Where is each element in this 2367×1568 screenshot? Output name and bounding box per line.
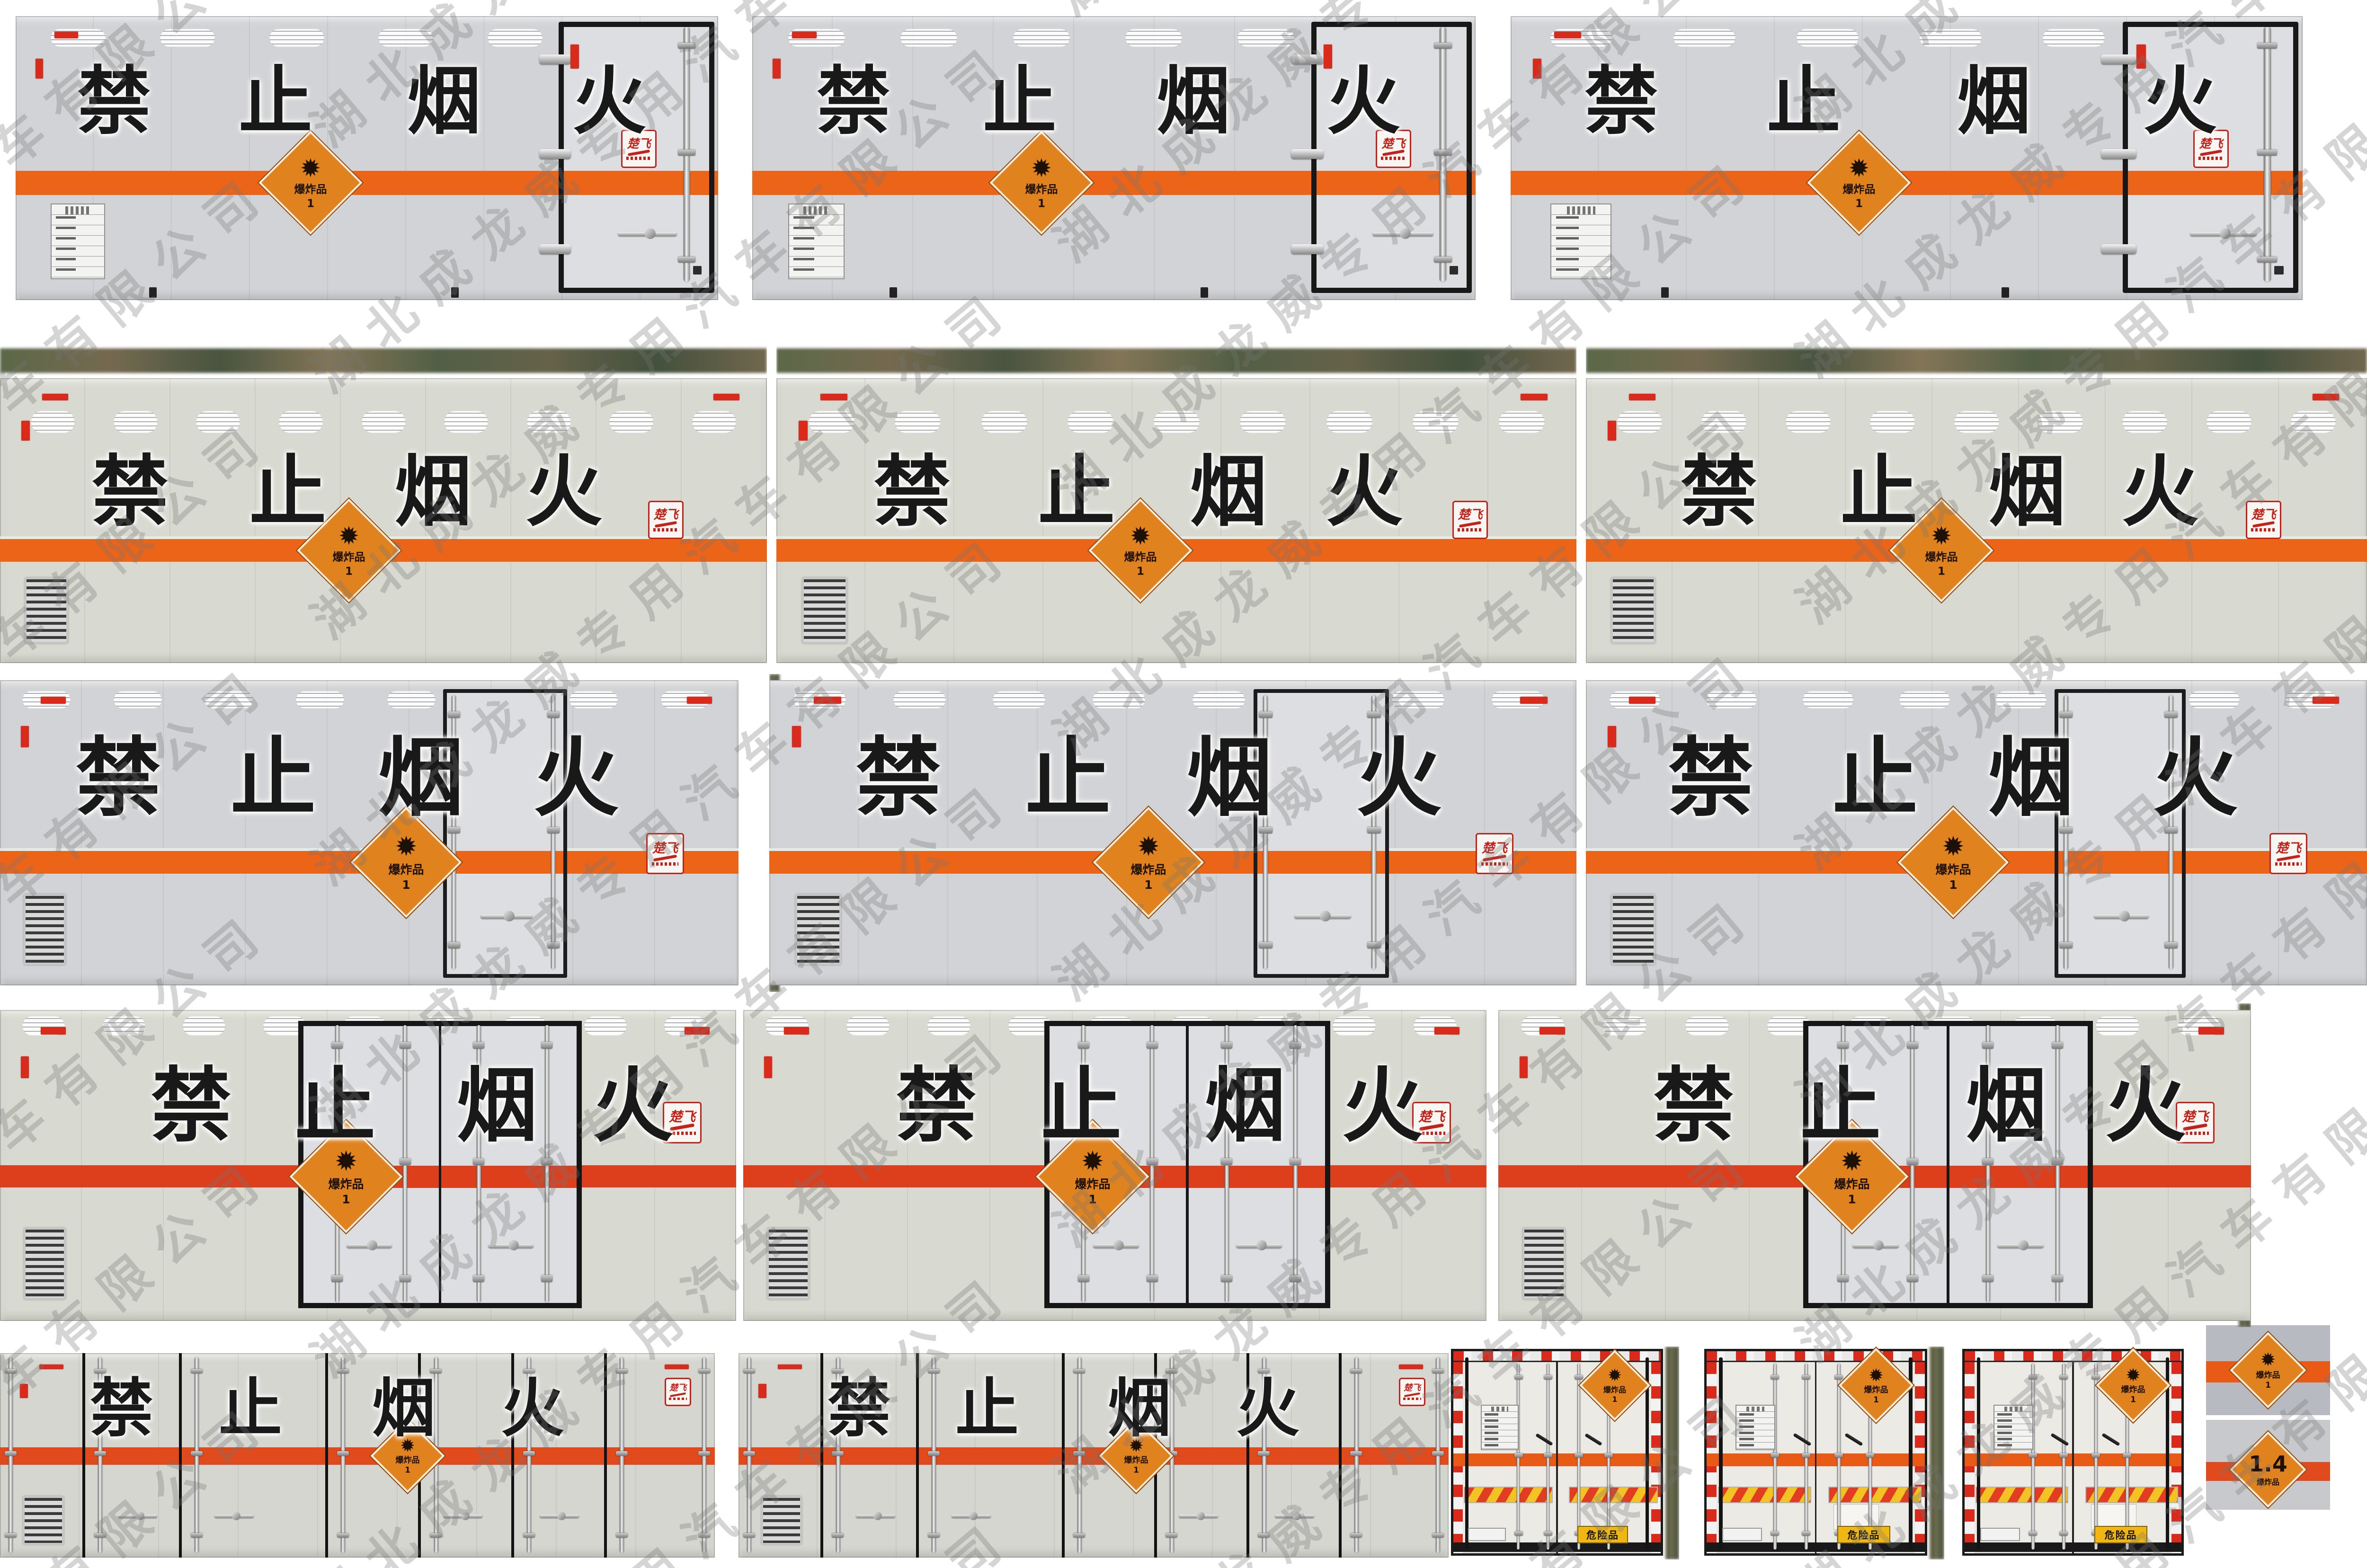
door-hinge — [1291, 244, 1324, 254]
vent-grille — [795, 894, 841, 965]
vent-slot — [1240, 411, 1286, 433]
reflector-marker — [1520, 1056, 1528, 1078]
placard-label: 爆炸品 — [1025, 184, 1058, 195]
explosion-icon: ✹ — [2126, 1366, 2141, 1384]
brand-subtext-marks — [653, 528, 678, 532]
lock-rod-bracket — [1771, 1375, 1779, 1380]
brand-swoosh-icon — [628, 150, 650, 156]
warning-char: 烟 — [407, 64, 481, 138]
placard-class-number: 1 — [405, 1467, 410, 1475]
lock-rod-bracket — [1982, 1042, 1993, 1049]
door-handle — [1793, 1433, 1811, 1446]
reflector-marker — [21, 1056, 29, 1078]
warning-char: 止 — [231, 735, 316, 821]
door-handle-hub — [1400, 228, 1411, 239]
door-handle-hub — [2220, 228, 2231, 239]
reflector-marker — [41, 697, 66, 704]
truck-box-side: ✹爆炸品1楚飞 — [0, 680, 739, 985]
placard-class-number: 1 — [1949, 879, 1957, 891]
reflector-marker — [814, 697, 841, 704]
lock-rod-bracket — [1290, 1042, 1301, 1049]
lock-rod-bracket — [1259, 711, 1272, 718]
warning-char: 止 — [239, 64, 312, 138]
hazard-placard-content: ✹爆炸品1 — [1109, 823, 1188, 902]
background-trees — [1586, 348, 2367, 373]
placard-label: 爆炸品 — [1925, 552, 1958, 563]
spec-plate-title-marks — [1491, 1407, 1508, 1411]
door-handle-hub — [136, 1512, 144, 1520]
door-lock-keeper — [2274, 266, 2284, 275]
truck-box-side: ✹爆炸品1楚飞 — [1498, 1010, 2251, 1321]
lock-rod-bracket — [1834, 1453, 1843, 1458]
vent-slot — [1603, 1016, 1646, 1036]
lock-rod-bracket — [430, 1533, 442, 1538]
warning-char: 烟 — [1108, 1377, 1171, 1440]
placard-class-number: 1 — [2130, 1396, 2136, 1405]
lock-rod-bracket — [1367, 711, 1381, 718]
placard-label: 爆炸品 — [1834, 1178, 1869, 1191]
placard-label: 爆炸品 — [1124, 552, 1157, 563]
reflective-chevron-strip — [1975, 1487, 2068, 1503]
warning-char: 火 — [1342, 1066, 1423, 1147]
lock-rod-bracket — [2091, 1375, 2100, 1380]
vent-grille — [767, 1228, 810, 1300]
vent-slot — [1996, 691, 2047, 709]
vent-slot — [114, 411, 158, 433]
license-plate — [1980, 1528, 2020, 1541]
vent-slot — [31, 411, 75, 433]
lock-rod-bracket — [1907, 1042, 1918, 1049]
brand-subtext-marks — [1403, 1398, 1421, 1400]
lock-rod-bracket — [2029, 1375, 2037, 1380]
lock-rod-bracket — [928, 1533, 940, 1538]
explosion-icon: ✹ — [1608, 1367, 1622, 1384]
reflector-marker — [54, 32, 78, 38]
vent-slot — [893, 691, 946, 709]
truck-photo-r5c3[interactable]: ✹爆炸品1危险品 — [1449, 1347, 1679, 1559]
door-handle-hub — [232, 1512, 240, 1520]
placard-label: 爆炸品 — [294, 184, 327, 195]
brand-logo-text: 楚飞 — [2276, 842, 2301, 855]
lock-rod-bracket — [94, 1533, 106, 1538]
lock-rod-bracket — [1837, 1042, 1849, 1049]
door-handle-hub — [367, 1240, 377, 1250]
lock-rod-bracket — [1802, 1531, 1810, 1536]
lock-rod-bracket — [191, 1369, 203, 1373]
truck-box-side: ✹爆炸品1楚飞 — [0, 1010, 736, 1321]
brand-sticker: 楚飞 — [1452, 501, 1488, 539]
reflector-marker — [39, 1364, 63, 1369]
vent-slot — [205, 691, 253, 709]
orange-stripe — [0, 1447, 715, 1465]
lock-rod-bracket — [1432, 1369, 1444, 1373]
explosion-icon: ✹ — [1931, 524, 1952, 549]
explosion-icon: ✹ — [2260, 1351, 2276, 1369]
truck-box-side: ✹爆炸品1楚飞 — [769, 680, 1576, 985]
spec-plate-entries — [1556, 216, 1579, 275]
vent-slot — [387, 691, 436, 709]
warning-char: 烟 — [394, 454, 472, 531]
truck-box-rear: ✹爆炸品1危险品 — [1704, 1349, 1927, 1556]
truck-photo-r3c2[interactable]: ✹爆炸品1楚飞禁止烟火 — [769, 674, 1576, 992]
lock-rod-bracket — [1350, 1369, 1362, 1373]
lock-rod-bracket — [832, 1451, 844, 1456]
door-center-seam — [1815, 1362, 1817, 1553]
reflector-marker — [685, 1027, 710, 1035]
door-handle — [2050, 1433, 2069, 1446]
background-trees — [1930, 1347, 1944, 1559]
vent-slot — [1068, 411, 1113, 433]
vent-slot — [809, 411, 854, 433]
placard-detail-photo-r5c7[interactable]: 1.4爆炸品 — [2206, 1420, 2330, 1510]
warning-char: 火 — [2105, 1066, 2186, 1147]
lock-rod-bracket — [616, 1451, 628, 1456]
reflector-marker — [1399, 1364, 1423, 1369]
lock-rod-bracket — [1544, 1453, 1552, 1458]
placard-class-number: 1 — [342, 1193, 350, 1205]
reflective-chevron-strip — [2085, 1487, 2178, 1503]
underbody-latch — [890, 287, 897, 298]
lock-rod-bracket — [698, 1451, 710, 1456]
lock-rod-bracket — [1514, 1531, 1523, 1536]
warning-char: 禁 — [896, 1066, 977, 1147]
reflector-marker — [792, 32, 817, 38]
hazard-placard-content: ✹爆炸品1 — [2107, 1359, 2160, 1412]
lock-rod-bracket — [1514, 1375, 1523, 1380]
brand-sticker: 楚飞 — [1399, 1378, 1425, 1406]
lock-rod-bracket — [473, 1158, 484, 1165]
placard-detail-photo-r5c6[interactable]: ✹爆炸品1 — [2206, 1325, 2330, 1415]
truck-photo-r4c3[interactable]: ✹爆炸品1楚飞禁止烟火 — [1498, 1003, 2251, 1327]
reflector-marker — [21, 421, 30, 441]
lock-rod-bracket — [331, 1042, 343, 1049]
door-hinge — [539, 244, 571, 254]
lock-rod-bracket — [331, 1275, 343, 1282]
placard-label: 爆炸品 — [1130, 864, 1166, 876]
hazard-placard-content: ✹爆炸品1 — [1590, 1360, 1640, 1410]
reflector-marker — [773, 59, 781, 79]
truck-photo-r5c4[interactable]: ✹爆炸品1危险品 — [1702, 1347, 1944, 1559]
lock-rod-bracket — [2059, 1453, 2068, 1458]
door-hinge — [2101, 149, 2136, 159]
vent-slots-row — [793, 691, 1544, 708]
vent-slot — [362, 411, 406, 433]
lock-rod-bracket — [2123, 1453, 2131, 1458]
explosion-icon: ✹ — [1031, 156, 1052, 181]
brand-subtext-marks — [1458, 528, 1482, 532]
vent-slot — [1673, 29, 1735, 47]
lock-rod-bracket — [1771, 1453, 1779, 1458]
brand-subtext-marks — [652, 862, 678, 866]
lock-rod-bracket — [1514, 1453, 1523, 1458]
reflector-marker — [1520, 697, 1548, 704]
vent-slots-row — [1617, 411, 2336, 432]
placard-label: 爆炸品 — [2121, 1386, 2145, 1395]
vent-slot — [1499, 411, 1545, 433]
placard-label: 爆炸品 — [396, 1457, 420, 1465]
reflector-marker — [1434, 1027, 1459, 1035]
placard-label: 爆炸品 — [388, 864, 424, 876]
warning-char: 禁 — [77, 64, 151, 138]
lock-rod-bracket — [1604, 1453, 1613, 1458]
truck-photo-r3c1[interactable]: ✹爆炸品1楚飞禁止烟火 — [0, 674, 739, 992]
lock-rod-bracket — [1544, 1375, 1552, 1380]
warning-char: 禁 — [151, 1066, 232, 1147]
vent-slot — [527, 411, 571, 433]
vent-slot — [2189, 691, 2240, 709]
door-seam — [325, 1353, 328, 1558]
warning-char: 禁 — [817, 64, 890, 138]
vent-grille — [25, 577, 68, 644]
reflector-marker — [1629, 394, 1655, 400]
lock-rod-bracket — [2257, 43, 2277, 49]
door-handle-hub — [461, 1512, 470, 1520]
lock-rod-bracket — [1907, 1158, 1918, 1165]
lock-rod-bracket — [2029, 1531, 2037, 1536]
door-handle-hub — [1873, 1240, 1884, 1250]
warning-char: 止 — [1833, 735, 1918, 821]
reflective-chevron-strip — [1718, 1487, 1811, 1503]
vent-slot — [114, 691, 162, 709]
warning-char: 禁 — [1668, 735, 1754, 821]
brand-sticker: 楚飞 — [648, 501, 684, 539]
lock-rod-bracket — [832, 1533, 844, 1538]
warning-char: 烟 — [1966, 1066, 2047, 1147]
hazard-placard-content: ✹爆炸品1 — [2241, 1343, 2295, 1397]
lock-rod-bracket — [1258, 1533, 1270, 1538]
reflector-marker — [1539, 1027, 1565, 1035]
explosion-icon: ✹ — [1869, 1366, 1884, 1384]
truck-photo-r1c1[interactable]: ✹爆炸品1楚飞禁止烟火 — [5, 4, 729, 312]
dangerous-goods-plate: 危险品 — [1577, 1526, 1628, 1543]
lock-rod-bracket — [928, 1369, 940, 1373]
lock-rod-bracket — [400, 1042, 411, 1049]
underbody-latch — [1661, 287, 1669, 298]
brand-swoosh-icon — [1404, 1392, 1420, 1397]
warning-char: 火 — [2143, 64, 2217, 138]
lock-rod-bracket — [1350, 1533, 1362, 1538]
explosion-icon: ✹ — [1942, 833, 1965, 860]
lock-rod-bracket — [616, 1369, 628, 1373]
spec-plate — [1550, 204, 1611, 279]
truck-photo-r2c3[interactable]: ✹爆炸品1楚飞禁止烟火 — [1586, 337, 2367, 666]
lock-rod-bracket — [1771, 1531, 1779, 1536]
vent-slot — [1333, 1016, 1376, 1036]
lock-rod-bracket — [1290, 1275, 1301, 1282]
warning-char: 烟 — [1988, 735, 2074, 821]
hazard-placard-content: ✹爆炸品1 — [1823, 146, 1896, 220]
placard-label: 爆炸品 — [1124, 1457, 1148, 1465]
vent-grille — [1522, 1228, 1566, 1300]
lock-rod-bracket — [1078, 1042, 1089, 1049]
placard-class-number: 1 — [1855, 198, 1863, 209]
vent-slot — [196, 411, 240, 433]
reflector-marker — [764, 1056, 772, 1078]
hazard-placard-content: ✹爆炸品1 — [1005, 146, 1078, 220]
lock-rod-bracket — [337, 1533, 349, 1538]
vent-slot — [296, 691, 344, 709]
placard-label: 爆炸品 — [1075, 1178, 1110, 1191]
door-center-seam — [1556, 1362, 1558, 1553]
truck-photo-r1c2[interactable]: ✹爆炸品1楚飞禁止烟火 — [741, 4, 1486, 312]
reflector-marker — [792, 726, 801, 747]
dangerous-goods-plate: 危险品 — [2094, 1526, 2147, 1543]
warning-char: 禁 — [76, 735, 161, 821]
edge-lock-rod — [1977, 1357, 1980, 1549]
spec-plate-title-marks — [803, 206, 829, 214]
reflector-marker — [1533, 59, 1541, 79]
spec-plate — [51, 204, 105, 279]
reflector-marker — [42, 394, 68, 400]
warning-char: 禁 — [856, 735, 942, 821]
door-stripe-segment — [447, 851, 563, 874]
lock-rod-bracket — [678, 150, 695, 156]
reflector-marker — [820, 394, 847, 400]
warning-char: 禁 — [90, 1377, 153, 1440]
explosion-icon: ✹ — [1130, 524, 1151, 549]
brand-sticker: 楚飞 — [646, 833, 684, 874]
warning-char: 禁 — [1584, 64, 1658, 138]
door-handle-hub — [1113, 1240, 1124, 1250]
lock-rod-bracket — [678, 257, 695, 263]
vent-slot — [1237, 29, 1294, 47]
brand-subtext-marks — [626, 157, 651, 160]
lock-rod-bracket — [5, 1451, 17, 1456]
lock-rod-bracket — [1147, 1275, 1158, 1282]
lock-rod-bracket — [1982, 1158, 1993, 1165]
lock-rod-bracket — [743, 1369, 755, 1373]
lock-rod-bracket — [1802, 1453, 1810, 1458]
reflector-marker — [1608, 726, 1616, 747]
orange-stripe — [739, 1447, 1449, 1465]
lock-rod-bracket — [2059, 942, 2073, 948]
lock-rod-bracket — [1434, 150, 1452, 156]
lock-rod-bracket — [743, 1533, 755, 1538]
warning-char: 止 — [955, 1377, 1019, 1440]
vent-slot — [2122, 411, 2167, 433]
rear-bumper — [1965, 1542, 2181, 1552]
brand-subtext-marks — [1481, 862, 1508, 866]
brand-logo-text: 楚飞 — [653, 509, 678, 521]
reflective-chevron-strip — [1828, 1487, 1922, 1503]
door-hinge — [539, 54, 571, 64]
vent-grille — [24, 894, 66, 965]
lock-rod-bracket — [2059, 711, 2073, 718]
lock-rod-bracket — [1290, 1158, 1301, 1165]
placard-class-number: 1 — [1133, 1467, 1139, 1475]
underbody-latch — [149, 287, 157, 298]
truck-photo-r5c5[interactable]: ✹爆炸品1危险品 — [1960, 1347, 2186, 1559]
placard-label: 爆炸品 — [2256, 1372, 2280, 1380]
vent-grille — [761, 1496, 802, 1545]
lock-rod-bracket — [698, 1533, 710, 1538]
vent-slot — [2096, 1016, 2139, 1036]
brand-subtext-marks — [2275, 862, 2302, 866]
lock-rod-bracket — [1575, 1453, 1583, 1458]
spec-plate-entries — [1485, 1413, 1498, 1447]
lock-rod-bracket — [473, 1275, 484, 1282]
brand-swoosh-icon — [655, 521, 677, 527]
lock-rod-bracket — [337, 1451, 349, 1456]
background-trees — [1665, 1347, 1679, 1559]
vent-grille — [802, 577, 847, 644]
door-center-seam — [2072, 1362, 2074, 1553]
vent-slot — [1192, 691, 1245, 709]
truck-photo-r4c1[interactable]: ✹爆炸品1楚飞禁止烟火 — [0, 1003, 736, 1327]
warning-char: 火 — [1326, 64, 1400, 138]
truck-photo-r2c2[interactable]: ✹爆炸品1楚飞禁止烟火 — [776, 337, 1576, 666]
placard-class-number: 1 — [1938, 566, 1945, 577]
vent-grille — [1611, 894, 1655, 965]
warning-char: 禁 — [1654, 1066, 1735, 1147]
spec-plate-title-marks — [65, 206, 90, 214]
lock-rod-bracket — [2059, 1531, 2068, 1536]
placard-class-number: 1.4 — [2249, 1453, 2287, 1475]
door-lock-keeper — [1450, 266, 1458, 275]
photo-collage: ✹爆炸品1楚飞禁止烟火✹爆炸品1楚飞禁止烟火✹爆炸品1楚飞禁止烟火✹爆炸品1楚飞… — [0, 0, 2367, 1568]
brand-logo-text: 楚飞 — [1458, 509, 1482, 521]
lock-rod-bracket — [2052, 1275, 2063, 1282]
vent-slot — [981, 411, 1027, 433]
truck-box-rear: ✹爆炸品1危险品 — [1962, 1349, 2184, 1556]
lock-rod-bracket — [1221, 1275, 1232, 1282]
truck-photo-r4c2[interactable]: ✹爆炸品1楚飞禁止烟火 — [743, 1003, 1486, 1327]
door-seam — [1062, 1353, 1065, 1558]
truck-photo-r3c3[interactable]: ✹爆炸品1楚飞禁止烟火 — [1586, 674, 2367, 992]
hazard-placard-content: ✹爆炸品1 — [274, 146, 347, 220]
reflective-chevron-strip — [1464, 1487, 1553, 1503]
warning-char: 烟 — [457, 1066, 538, 1147]
vent-slots-row — [51, 29, 543, 46]
truck-photo-r2c1[interactable]: ✹爆炸品1楚飞禁止烟火 — [0, 337, 767, 666]
lock-rod-bracket — [400, 1158, 411, 1165]
lock-rod-bracket — [1982, 1275, 1993, 1282]
lock-rod-bracket — [1802, 1375, 1810, 1380]
reflector-marker — [758, 1384, 766, 1398]
placard-class-number: 1 — [1088, 1193, 1096, 1205]
spec-plate-entries — [793, 216, 814, 275]
spec-plate — [1481, 1405, 1519, 1450]
brand-swoosh-icon — [1459, 521, 1481, 527]
brand-logo-text: 楚飞 — [669, 1384, 686, 1392]
hazard-placard-content: ✹爆炸品1 — [1914, 823, 1993, 902]
background-trees — [776, 348, 1576, 373]
lock-rod-bracket — [523, 1533, 535, 1538]
vent-slot — [1899, 691, 1950, 709]
placard-class-number: 1 — [1038, 198, 1045, 209]
reflector-marker — [665, 1364, 689, 1369]
door-handle-hub — [1256, 1240, 1267, 1250]
lock-rod-bracket — [616, 1533, 628, 1538]
truck-photo-r1c3[interactable]: ✹爆炸品1楚飞禁止烟火 — [1498, 4, 2315, 312]
truck-photo-r5c2[interactable]: ✹爆炸品1楚飞禁止烟火 — [739, 1349, 1449, 1562]
lock-rod-bracket — [2029, 1453, 2037, 1458]
reflective-chevron-strip — [1569, 1487, 1658, 1503]
spec-plate-title-marks — [1746, 1407, 1764, 1411]
warning-char: 火 — [593, 1066, 674, 1147]
door-handle-hub — [2119, 911, 2130, 921]
vent-slot — [1803, 691, 1853, 709]
warning-char: 止 — [1767, 64, 1841, 138]
door-seam — [82, 1353, 85, 1558]
door-hinge — [1291, 149, 1324, 159]
spec-plate-entries — [1739, 1413, 1753, 1447]
license-plate — [1722, 1528, 1762, 1541]
brand-swoosh-icon — [670, 1392, 686, 1397]
truck-photo-r5c1[interactable]: ✹爆炸品1楚飞禁止烟火 — [0, 1349, 715, 1562]
brand-subtext-marks — [2198, 157, 2223, 160]
warning-char: 止 — [1840, 454, 1917, 531]
